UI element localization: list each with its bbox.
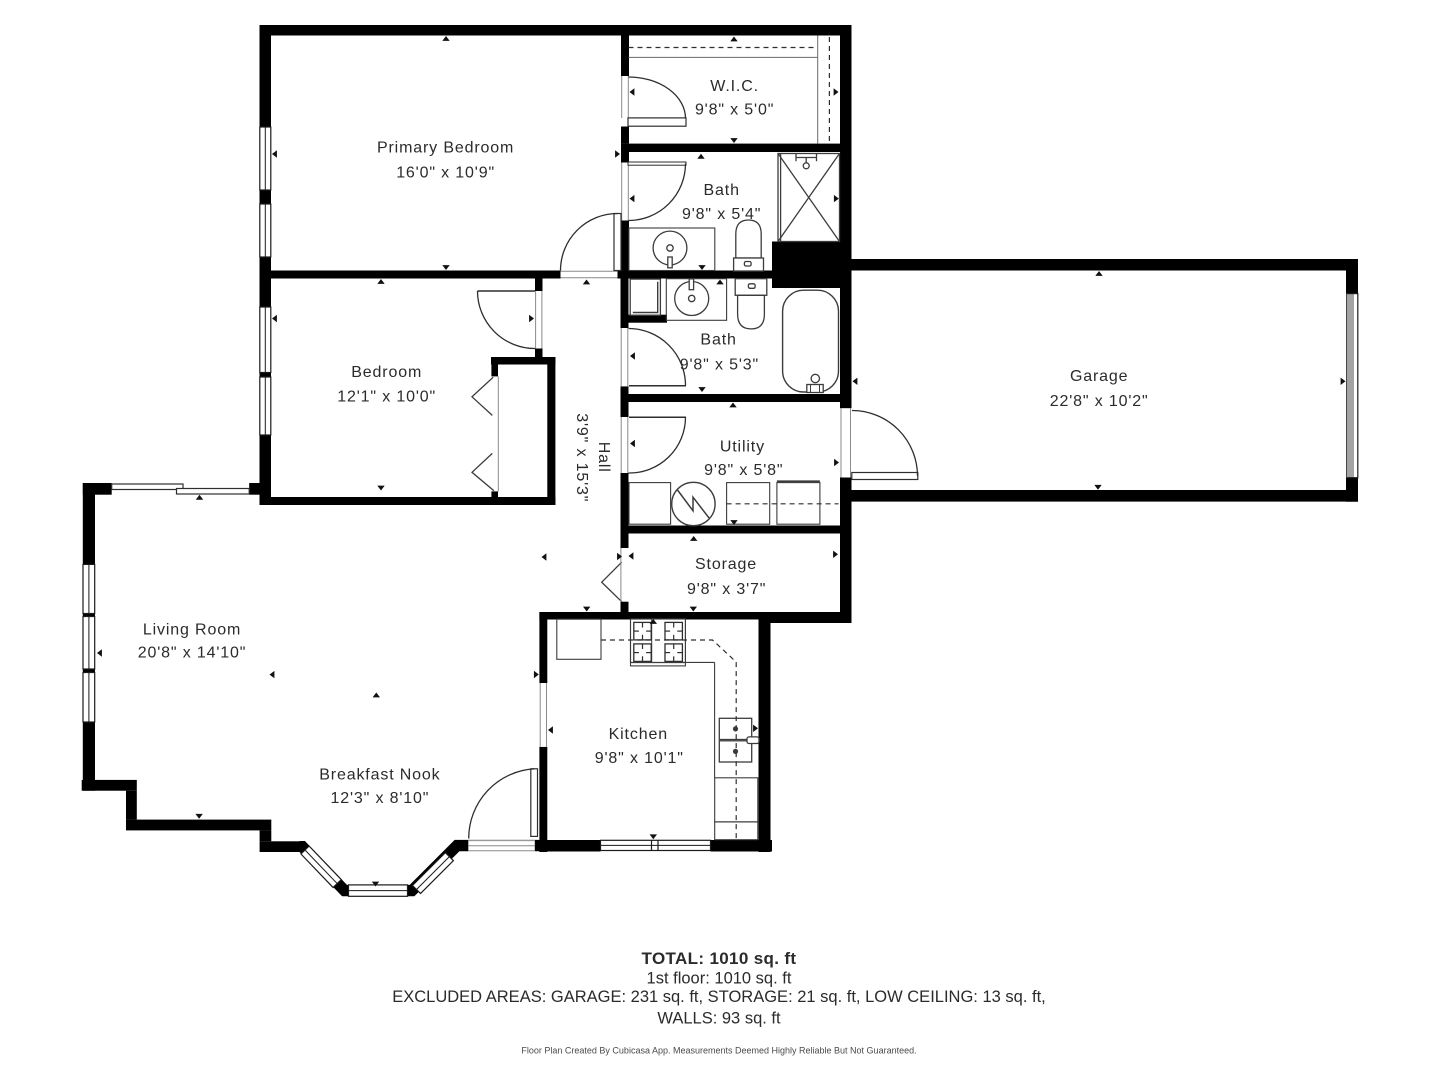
svg-text:Kitchen: Kitchen bbox=[609, 726, 668, 743]
svg-text:9'8" x 5'0": 9'8" x 5'0" bbox=[695, 101, 774, 118]
svg-text:12'3" x 8'10": 12'3" x 8'10" bbox=[330, 790, 429, 807]
svg-text:9'8" x 10'1": 9'8" x 10'1" bbox=[595, 750, 684, 767]
svg-text:Bath: Bath bbox=[700, 332, 736, 349]
svg-text:W.I.C.: W.I.C. bbox=[710, 78, 759, 95]
svg-text:3'9" x 15'3": 3'9" x 15'3" bbox=[573, 413, 590, 502]
svg-text:EXCLUDED AREAS: GARAGE: 231 sq: EXCLUDED AREAS: GARAGE: 231 sq. ft, STOR… bbox=[392, 988, 1046, 1006]
svg-text:Bath: Bath bbox=[704, 182, 740, 199]
svg-text:22'8" x 10'2": 22'8" x 10'2" bbox=[1050, 393, 1149, 410]
svg-text:9'8" x 5'3": 9'8" x 5'3" bbox=[680, 357, 759, 374]
svg-text:WALLS: 93 sq. ft: WALLS: 93 sq. ft bbox=[657, 1010, 781, 1028]
svg-text:TOTAL: 1010 sq. ft: TOTAL: 1010 sq. ft bbox=[642, 949, 797, 968]
svg-text:Utility: Utility bbox=[720, 439, 765, 456]
svg-text:20'8" x 14'10": 20'8" x 14'10" bbox=[138, 644, 247, 661]
svg-text:Storage: Storage bbox=[695, 556, 757, 573]
svg-text:Floor Plan Created By Cubicasa: Floor Plan Created By Cubicasa App. Meas… bbox=[521, 1046, 916, 1056]
svg-text:Breakfast Nook: Breakfast Nook bbox=[319, 767, 440, 784]
svg-text:Primary Bedroom: Primary Bedroom bbox=[377, 140, 514, 157]
svg-text:9'8" x 5'8": 9'8" x 5'8" bbox=[704, 462, 783, 479]
svg-text:9'8" x 3'7": 9'8" x 3'7" bbox=[687, 581, 766, 598]
svg-text:16'0" x 10'9": 16'0" x 10'9" bbox=[396, 165, 495, 182]
svg-text:Living Room: Living Room bbox=[143, 621, 241, 638]
svg-text:Hall: Hall bbox=[595, 442, 612, 473]
svg-text:Bedroom: Bedroom bbox=[351, 364, 422, 381]
svg-text:12'1" x 10'0": 12'1" x 10'0" bbox=[337, 389, 436, 406]
svg-text:Garage: Garage bbox=[1070, 368, 1128, 385]
svg-text:1st floor: 1010 sq. ft: 1st floor: 1010 sq. ft bbox=[647, 970, 792, 988]
svg-text:9'8" x 5'4": 9'8" x 5'4" bbox=[682, 206, 761, 223]
